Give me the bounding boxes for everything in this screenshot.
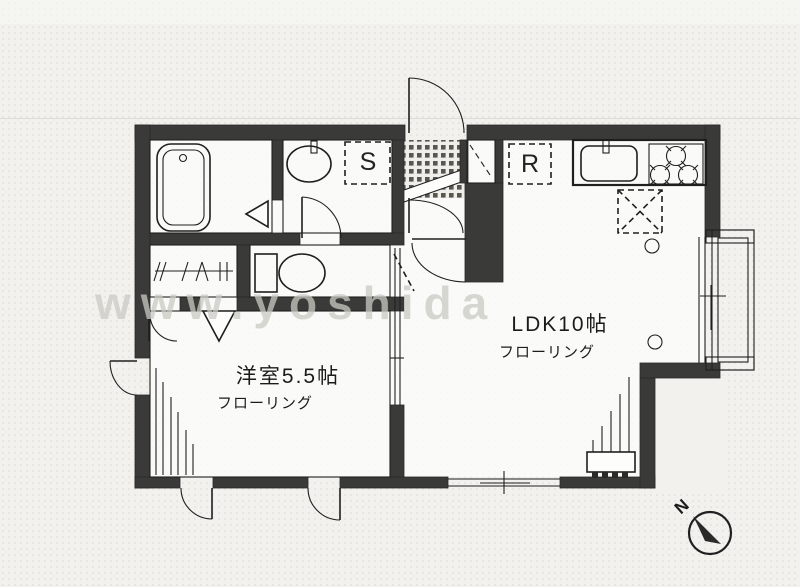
western-room-flooring-label: フローリング <box>190 392 340 413</box>
western-room-bottom-door-left <box>181 488 212 519</box>
western-room-bottom-door-right <box>308 488 340 520</box>
entrance-tile-floor <box>404 140 467 202</box>
western-room-label: 洋室5.5帖 <box>198 360 378 390</box>
storage-marker-label: S <box>352 148 384 177</box>
compass-icon <box>689 512 731 554</box>
ldk-flooring-label: フローリング <box>472 341 622 362</box>
ldk-room-label: LDK10帖 <box>470 308 650 338</box>
bay-window <box>699 230 754 370</box>
entrance-door <box>409 78 464 133</box>
floorplan-canvas: S R LDK10帖 フローリング 洋室5.5帖 フローリング N www.yo… <box>0 0 800 587</box>
refrigerator-marker-label: R <box>514 150 546 179</box>
western-room-left-door <box>110 361 137 395</box>
